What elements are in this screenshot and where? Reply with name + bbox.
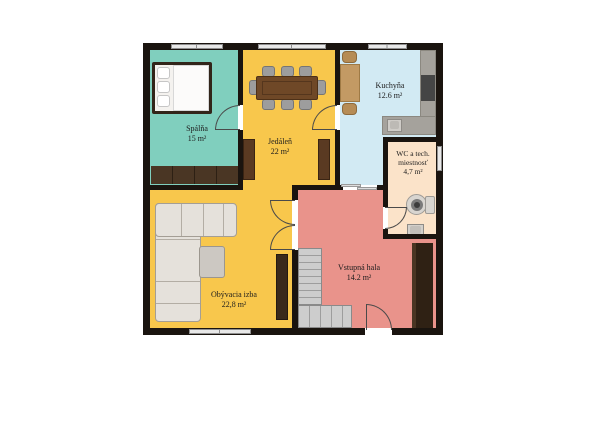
sofa-cushion-line: [181, 204, 182, 236]
room-label-living: Obývacia izba 22,8 m²: [189, 290, 279, 310]
dining-chair: [262, 99, 275, 110]
wall: [143, 185, 243, 190]
room-area: 14.2 m²: [314, 273, 404, 283]
sofa-cushion-line: [203, 204, 204, 236]
wall: [383, 234, 443, 239]
kitchen-door-leaf: [312, 129, 337, 130]
room-label-hall: Vstupná hala 14.2 m²: [314, 263, 404, 283]
sofa-cushion-line: [223, 204, 224, 236]
wall: [292, 250, 298, 328]
dining-window: [258, 44, 326, 49]
bed-pillow: [157, 95, 170, 107]
bedroom-window: [171, 44, 223, 49]
room-name: miestnosť: [368, 158, 458, 167]
kitchen-chair: [342, 51, 357, 63]
bed-pillow: [157, 67, 170, 79]
corner-sofa-horizontal: [155, 203, 237, 237]
kitchen-chair: [342, 103, 357, 115]
wall: [436, 43, 443, 335]
room-name: WC a tech.: [368, 149, 458, 158]
entrance-door-leaf: [366, 304, 367, 330]
sofa-cushion-line: [156, 239, 200, 240]
sofa-cushion-line: [156, 281, 200, 282]
room-name: Vstupná hala: [314, 263, 404, 273]
room-name: Jedáleň: [235, 137, 325, 147]
room-area: 15 m²: [152, 134, 242, 144]
double-door-leaf-bottom: [270, 249, 295, 250]
dining-chair: [281, 99, 294, 110]
room-area: 22,8 m²: [189, 300, 279, 310]
dining-chair: [299, 99, 312, 110]
room-area: 4,7 m²: [368, 167, 458, 176]
wall: [335, 130, 340, 188]
wall: [143, 328, 443, 335]
wall: [335, 43, 340, 105]
bedroom-wardrobe: [151, 166, 240, 184]
room-label-wc: WC a tech. miestnosť 4,7 m²: [368, 149, 458, 176]
wall: [383, 229, 388, 239]
coffee-table: [199, 246, 225, 278]
wall: [292, 185, 298, 200]
wc-sink-basin: [410, 226, 421, 234]
double-door-leaf-top: [270, 200, 295, 201]
staircase-landing: [298, 305, 352, 328]
room-name: Obývacia izba: [189, 290, 279, 300]
room-area: 22 m²: [235, 147, 325, 157]
sliding-door-panel: [357, 187, 377, 190]
wc-door-leaf: [385, 207, 407, 208]
dining-table-inset: [262, 81, 312, 95]
wall: [383, 137, 443, 142]
hall-wardrobe: [412, 243, 433, 328]
wall: [292, 185, 343, 190]
room-label-kitchen: Kuchyňa 12.6 m²: [345, 81, 435, 101]
tv-cabinet: [276, 254, 288, 320]
living-window: [189, 329, 251, 334]
kitchen-window: [368, 44, 407, 49]
room-area: 12.6 m²: [345, 91, 435, 101]
wc-tank: [425, 196, 435, 214]
washing-machine-core: [414, 202, 420, 208]
room-name: Kuchyňa: [345, 81, 435, 91]
bed-duvet: [173, 65, 209, 111]
floor-plan: Spálňa 15 m² Jedáleň 22 m² Kuchyňa 12.6 …: [0, 0, 600, 426]
bed-pillow: [157, 81, 170, 93]
room-name: Spálňa: [152, 124, 242, 134]
wall: [238, 43, 243, 105]
kitchen-sink-basin: [390, 121, 399, 129]
room-label-dining: Jedáleň 22 m²: [235, 137, 325, 157]
room-label-bedroom: Spálňa 15 m²: [152, 124, 242, 144]
